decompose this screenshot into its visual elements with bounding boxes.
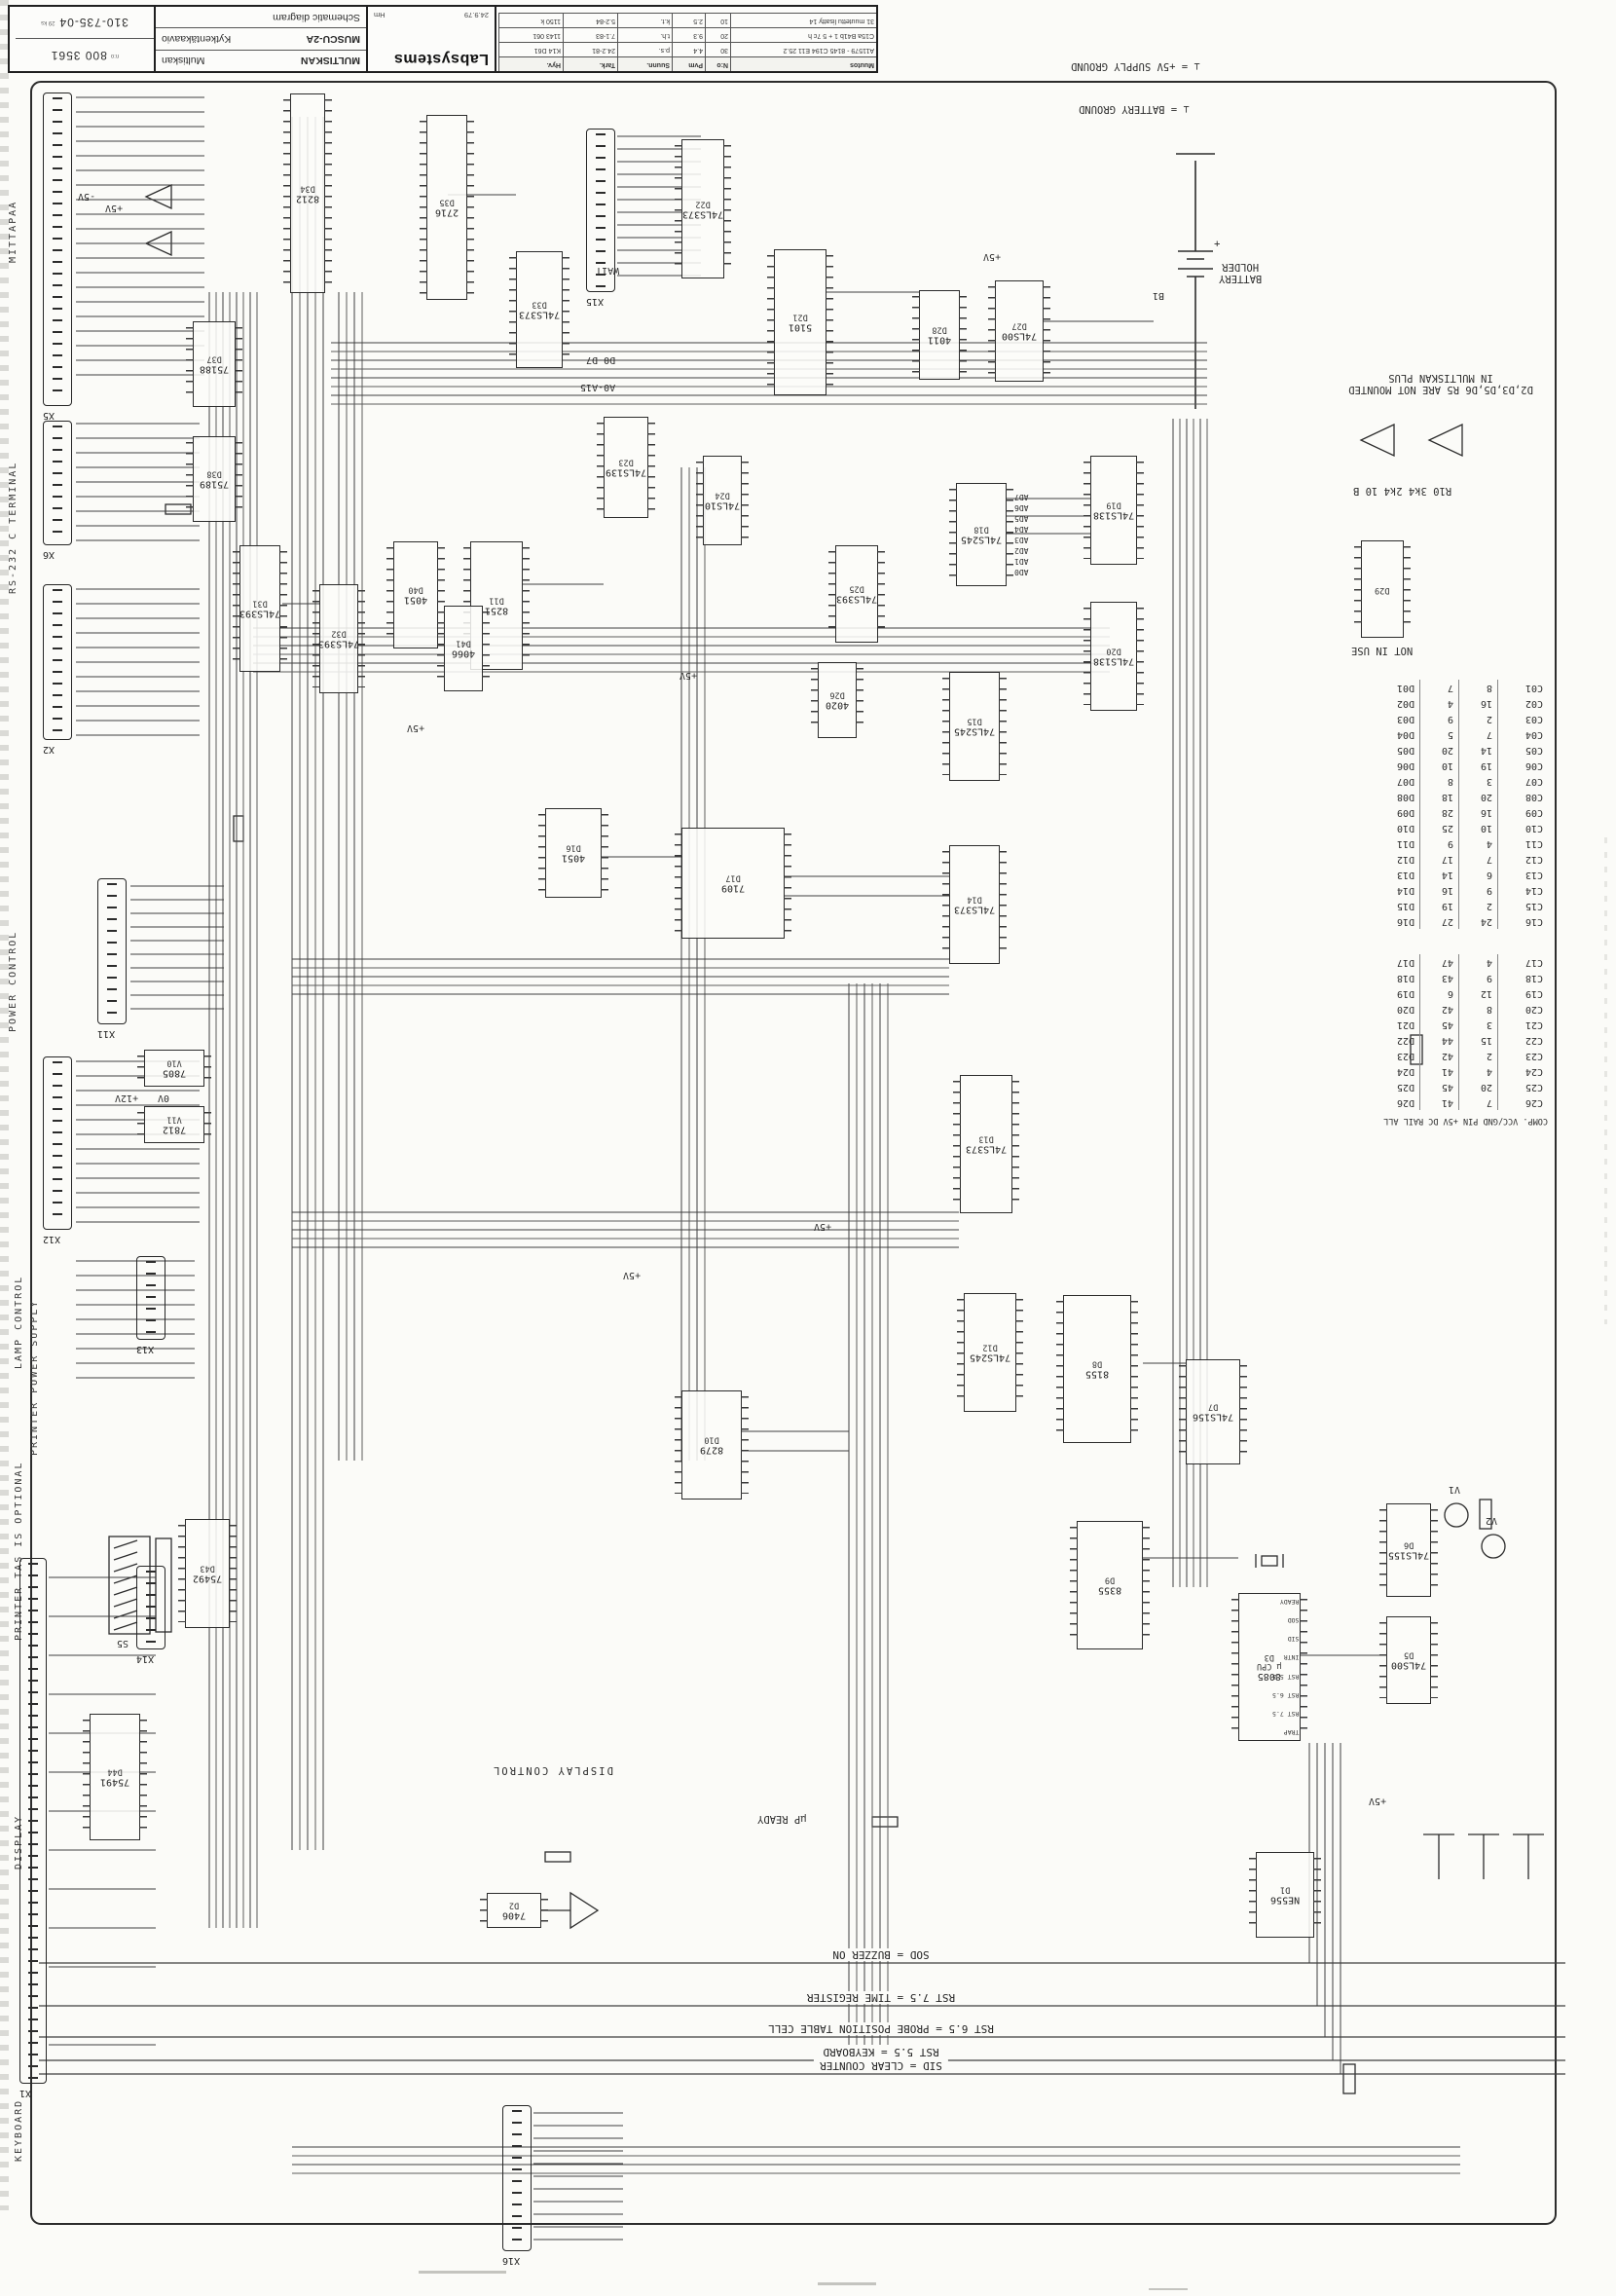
misc-label: +5V (983, 251, 1001, 262)
connector (43, 584, 72, 740)
scan-streak (0, 0, 9, 2210)
ic-block: 74LS373D33 (516, 251, 563, 368)
misc-label: +5V (679, 670, 697, 681)
ic-block: 74LS138D20 (1090, 602, 1137, 711)
ic-label: 4051D16 (562, 842, 585, 863)
parts-row: C0738D07 (1355, 773, 1548, 789)
revision-cell: 4.4 (672, 42, 705, 56)
ic-label: 74LS393D25 (836, 583, 877, 604)
ic-label: 4066D41 (452, 638, 475, 658)
parts-row: C221544D22 (1355, 1032, 1548, 1048)
misc-label: +5V (407, 722, 424, 733)
connector (19, 1558, 47, 2084)
ic-label: 74LS373D22 (682, 199, 723, 219)
ic-label: 4020D26 (826, 689, 849, 710)
revision-cell: 24.2-81 (563, 42, 617, 56)
signal-line-label: SOD = BUZZER ON (826, 1948, 935, 1961)
revision-header: N:o (705, 56, 730, 71)
product-name-fi: Multiskan (162, 55, 204, 66)
ic-label: NE556D1 (1270, 1884, 1300, 1905)
misc-label: +5V (623, 1270, 641, 1280)
connector (136, 1566, 165, 1649)
ic-label: 74LS00D5 (1391, 1649, 1426, 1670)
parts-row: C26741D26 (1355, 1094, 1548, 1110)
connector (97, 878, 127, 1024)
revision-header: Pvm (672, 56, 705, 71)
drawing-numbers-cell: n:o 800 3561 310-735-04 29 ks (16, 7, 156, 71)
ic-block: 74LS393D32 (319, 584, 358, 693)
bus-label: AD1 (1014, 557, 1028, 566)
cpu-pin-labels: TRAPRST 7.5RST 6.5RST 5.5INTRSIDSODREADY (1272, 1598, 1299, 1736)
parts-row: C15219D15 (1355, 898, 1548, 913)
parts-row: C23242D23 (1355, 1048, 1548, 1063)
drawing-number: 310-735-04 (58, 16, 128, 29)
approval-date: 24.9.79 (464, 11, 489, 19)
sheet-frame (31, 82, 1556, 2224)
ic-block: 74LS139D23 (604, 417, 648, 518)
section-label: POWER CONTROL (8, 876, 18, 1032)
ic-label: 74LS373D33 (519, 299, 560, 319)
revision-cell: 1143 061 (498, 27, 563, 42)
revision-table: MuutosN:oPvmSuunn.Tark.Hyv.A11579 - 8145… (496, 7, 876, 71)
connector (43, 1056, 72, 1230)
ic-label: 74LS245D18 (961, 524, 1002, 544)
ic-block: 75188D37 (193, 321, 236, 407)
revision-header: Hyv. (498, 56, 563, 71)
connector-label: X1 (19, 2088, 31, 2098)
bus-label: AD7 (1014, 493, 1028, 501)
board-name: MUSCU-2A (307, 33, 360, 45)
approval-sign: Hm (374, 11, 386, 19)
opamp-icon (146, 185, 171, 255)
parts-row: C02164D02 (1355, 695, 1548, 711)
company-logo: Labsystems (374, 50, 489, 67)
ic-label: 74LS139D23 (606, 457, 646, 477)
revision-cell: 31 muutettu lisatty 14 (730, 13, 876, 27)
signal-line-label: RST 5.5 = KEYBOARD (817, 2046, 944, 2058)
ic-label: 7406D2 (502, 1900, 526, 1920)
ic-block: 4051D16 (545, 808, 602, 898)
crystal-icon (1256, 1554, 1283, 1568)
ic-label: 7805V10 (163, 1057, 186, 1078)
ic-label: 5101D21 (789, 312, 812, 332)
ic-block: 74LS373D14 (949, 845, 1000, 964)
ic-block: 4020D26 (818, 662, 857, 738)
parts-row: C0475D04 (1355, 726, 1548, 742)
ic-block: 7812V11 (144, 1106, 204, 1143)
misc-label: WAIT (596, 265, 619, 276)
revision-cell: K14 D61 (498, 42, 563, 56)
ic-label: 74LS138D19 (1093, 500, 1134, 520)
scan-smudge (818, 2282, 876, 2285)
ic-block: 75492D43 (185, 1519, 230, 1628)
scan-streak (1604, 837, 1607, 1324)
section-label: MITTAPÄÄ (8, 117, 18, 263)
ic-label: 74LS155D6 (1388, 1539, 1429, 1560)
misc-label: B1 (1153, 290, 1164, 301)
parts-row: C24441D24 (1355, 1063, 1548, 1079)
connector (136, 1256, 165, 1340)
revision-cell: 5.2-84 (563, 13, 617, 27)
parts-row: C101025D10 (1355, 820, 1548, 835)
doc-number-label: n:o (111, 53, 119, 58)
misc-label: D0-D7 (586, 354, 615, 365)
parts-row: C091628D09 (1355, 804, 1548, 820)
bus-label: AD5 (1014, 514, 1028, 523)
ic-block: NE556D1 (1256, 1852, 1314, 1938)
drawing-names-cell: MULTISKAN Multiskan MUSCU-2A Kytkentäkaa… (156, 7, 368, 71)
company-logo-cell: Labsystems 24.9.79 Hm (368, 7, 496, 71)
product-name-en: MULTISKAN (301, 55, 360, 66)
revision-header: Suunn. (617, 56, 672, 71)
ic-label: 4011D28 (928, 324, 951, 345)
battery-plus: + (1214, 238, 1220, 249)
ic-block: 75189D38 (193, 436, 236, 522)
section-label: PRINTER POWER SUPPLY (29, 1285, 40, 1456)
parts-row: C082018D08 (1355, 789, 1548, 804)
revision-cell: 9.3 (672, 27, 705, 42)
ic-block: 74LS373D13 (960, 1075, 1012, 1213)
display-control-label: DISPLAY CONTROL (492, 1764, 613, 1776)
ic-block: 74LS156D7 (1186, 1359, 1240, 1464)
connector (502, 2105, 532, 2251)
parts-row: C17447D17 (1355, 954, 1548, 970)
bus-label: AD4 (1014, 525, 1028, 534)
connector-label: X14 (136, 1653, 154, 1664)
ic-label: 74LS245D12 (970, 1342, 1010, 1362)
parts-row: C12717D12 (1355, 851, 1548, 867)
drawing-type: Schematic diagram (273, 12, 360, 23)
ic-label: 8155D8 (1085, 1358, 1109, 1379)
ic-block: 8355D9 (1077, 1521, 1143, 1649)
ic-block: 75491D44 (90, 1714, 140, 1840)
ic-label: 8279D10 (700, 1434, 723, 1455)
revision-header: Tark. (563, 56, 617, 71)
up-ready-label: µP READY (757, 1813, 807, 1825)
ic-label: 74LS393D31 (239, 598, 280, 618)
ic-label: 8355D9 (1098, 1574, 1121, 1595)
parts-row: C18943D18 (1355, 970, 1548, 985)
misc-label: -5V (78, 191, 95, 202)
revision-cell: 1150 k (498, 13, 563, 27)
section-label: RS-232 C TERMINAL (8, 389, 18, 594)
ic-block: 74LS10D24 (703, 456, 742, 545)
connector-label: X13 (136, 1344, 154, 1354)
ic-label: 74LS373D14 (954, 894, 995, 914)
ic-block: 7406D2 (487, 1893, 541, 1928)
misc-label: S5 (117, 1638, 129, 1648)
drawing-number-extra: 29 ks (41, 19, 55, 25)
revision-cell: k.t. (617, 13, 672, 27)
ic-block: 74LS245D12 (964, 1293, 1016, 1412)
parts-row: C13614D13 (1355, 867, 1548, 882)
connector-label: X15 (586, 296, 604, 307)
misc-label: +5V (1369, 1796, 1386, 1806)
parts-table: COMP. VCC/GND PIN +5V DC RAIL ALL C26741… (1355, 680, 1548, 1126)
ic-block: 4051D40 (393, 541, 438, 648)
ic-block: 8085µ CPUD3TRAPRST 7.5RST 6.5RST 5.5INTR… (1238, 1593, 1301, 1741)
title-block: MuutosN:oPvmSuunn.Tark.Hyv.A11579 - 8145… (8, 5, 878, 73)
ic-label: 74LS245D15 (954, 716, 995, 736)
parts-row: C061910D06 (1355, 758, 1548, 773)
ic-label: 7812V11 (163, 1114, 186, 1134)
ic-block: 74LS245D18 (956, 483, 1007, 586)
revision-cell: 30 (705, 42, 730, 56)
ic-block: 7805V10 (144, 1050, 204, 1087)
ic-label: 74LS156D7 (1193, 1401, 1233, 1422)
ic-label: 74LS393D32 (318, 628, 359, 648)
connector (43, 93, 72, 406)
misc-label: V1 (1449, 1484, 1460, 1495)
ic-block: 5101D21 (774, 249, 826, 395)
schematic-sheet: MuutosN:oPvmSuunn.Tark.Hyv.A11579 - 8145… (0, 0, 1616, 2296)
ground-note-5v: ⊥ = +5V SUPPLY GROUND (1071, 60, 1200, 72)
scan-smudge (1149, 2288, 1188, 2290)
connector (43, 421, 72, 545)
revision-cell: 2.5 (672, 13, 705, 27)
parts-row: C252045D25 (1355, 1079, 1548, 1094)
bus-label: AD2 (1014, 546, 1028, 555)
revision-cell: A11579 - 8145 C194 E11 25.2 (730, 42, 876, 56)
ic-block: 74LS00D27 (995, 280, 1044, 382)
ic-block: 7109D17 (681, 828, 785, 939)
transistor-icon (1445, 1503, 1505, 1558)
buzzer-icon (541, 1893, 598, 1928)
scan-smudge (419, 2271, 506, 2274)
misc-label: V2 (1486, 1515, 1497, 1526)
ic-label: 75189D38 (200, 468, 229, 489)
ic-label: 74LS138D20 (1093, 646, 1134, 666)
ic-block: 74LS155D6 (1386, 1503, 1431, 1597)
ic-block: 74LS138D19 (1090, 456, 1137, 565)
ic-block: 74LS393D25 (835, 545, 878, 643)
ic-block: 4066D41 (444, 606, 483, 691)
ic-label: 8212D34 (296, 183, 319, 204)
resistor-note: R10 3k4 2k4 10 B (1353, 485, 1451, 497)
ic-block: 74LS245D15 (949, 672, 1000, 781)
spare-gate-icon (1361, 425, 1462, 456)
ic-block: 8212D34 (290, 93, 325, 293)
bus-label: AD0 (1014, 568, 1028, 576)
ic-block: 2716D35 (426, 115, 467, 300)
not-mounted-note: D2,D3,D5,D6 R5 ARE NOT MOUNTED IN MULTIS… (1319, 372, 1562, 395)
revision-cell: 7.1-83 (563, 27, 617, 42)
misc-label: +5V (105, 203, 123, 213)
revision-cell: p.s. (617, 42, 672, 56)
connector-label: X5 (43, 410, 55, 421)
misc-label: +5V (814, 1221, 831, 1232)
connector-label: X2 (43, 744, 55, 755)
ic-label: 75492D43 (193, 1563, 222, 1583)
parts-row: C20842D20 (1355, 1001, 1548, 1017)
parts-row: C0329D03 (1355, 711, 1548, 726)
revision-cell: C15a B41b 1 + 5 7c h (730, 27, 876, 42)
misc-label: A0-A15 (580, 382, 615, 392)
parts-row: C14916D14 (1355, 882, 1548, 898)
ic-label: 74LS373D13 (966, 1133, 1007, 1154)
connector-label: X16 (502, 2255, 520, 2266)
ic-label: 75491D44 (100, 1766, 129, 1787)
ground-note-battery: ⊥ = BATTERY GROUND (1079, 103, 1190, 115)
revision-cell: t.h. (617, 27, 672, 42)
ic-block: 8279D10 (681, 1390, 742, 1500)
ic-block: 74LS00D5 (1386, 1616, 1431, 1704)
ic-block: 4011D28 (919, 290, 960, 380)
pullup-icon (1423, 1834, 1544, 1879)
misc-label: 0V (158, 1092, 169, 1103)
misc-label: +12V (115, 1092, 138, 1103)
section-label: LAMP CONTROL (14, 1252, 24, 1369)
signal-line-label: SID = CLEAR COUNTER (814, 2059, 948, 2072)
parts-row: C0187D01 (1355, 680, 1548, 695)
connector-label: X11 (97, 1028, 115, 1039)
ic-label: 74LS00D27 (1002, 320, 1037, 341)
ic-block: 74LS373D22 (681, 139, 724, 278)
ic-block: D29 (1361, 540, 1404, 638)
connector-label: X6 (43, 549, 55, 560)
signal-line-label: RST 7.5 = TIME REGISTER (801, 1991, 961, 2004)
bus-label: AD6 (1014, 503, 1028, 512)
signal-line-label: RST 6.5 = PROBE POSITION TABLE CELL (762, 2022, 1000, 2035)
not-in-use-note: NOT IN USE (1351, 645, 1413, 656)
ic-label: D29 (1375, 584, 1389, 594)
ic-label: 75188D37 (200, 353, 229, 374)
parts-row: C21345D21 (1355, 1017, 1548, 1032)
board-name-fi: Kytkentäkaavio (162, 33, 231, 45)
battery-symbol (1176, 154, 1215, 409)
ic-block: 74LS393D31 (239, 545, 280, 672)
parts-row: C1149D11 (1355, 835, 1548, 851)
bus-label: AD3 (1014, 536, 1028, 544)
battery-label: BATTERY HOLDER (1219, 261, 1262, 284)
ic-block: 8155D8 (1063, 1295, 1131, 1443)
revision-cell: 20 (705, 27, 730, 42)
ic-label: 4051D40 (404, 584, 427, 605)
parts-table-caption: COMP. VCC/GND PIN +5V DC RAIL ALL (1355, 1116, 1548, 1126)
connector-label: X12 (43, 1234, 60, 1244)
parts-row: C162427D16 (1355, 913, 1548, 929)
ic-label: 7109D17 (721, 872, 745, 893)
ic-label: 74LS10D24 (705, 490, 740, 510)
parts-row: C051420D05 (1355, 742, 1548, 758)
ic-label: 2716D35 (435, 197, 459, 217)
parts-row: C19126D19 (1355, 985, 1548, 1001)
revision-header: Muutos (730, 56, 876, 71)
doc-number: 800 3561 (51, 49, 107, 62)
revision-cell: 10 (705, 13, 730, 27)
